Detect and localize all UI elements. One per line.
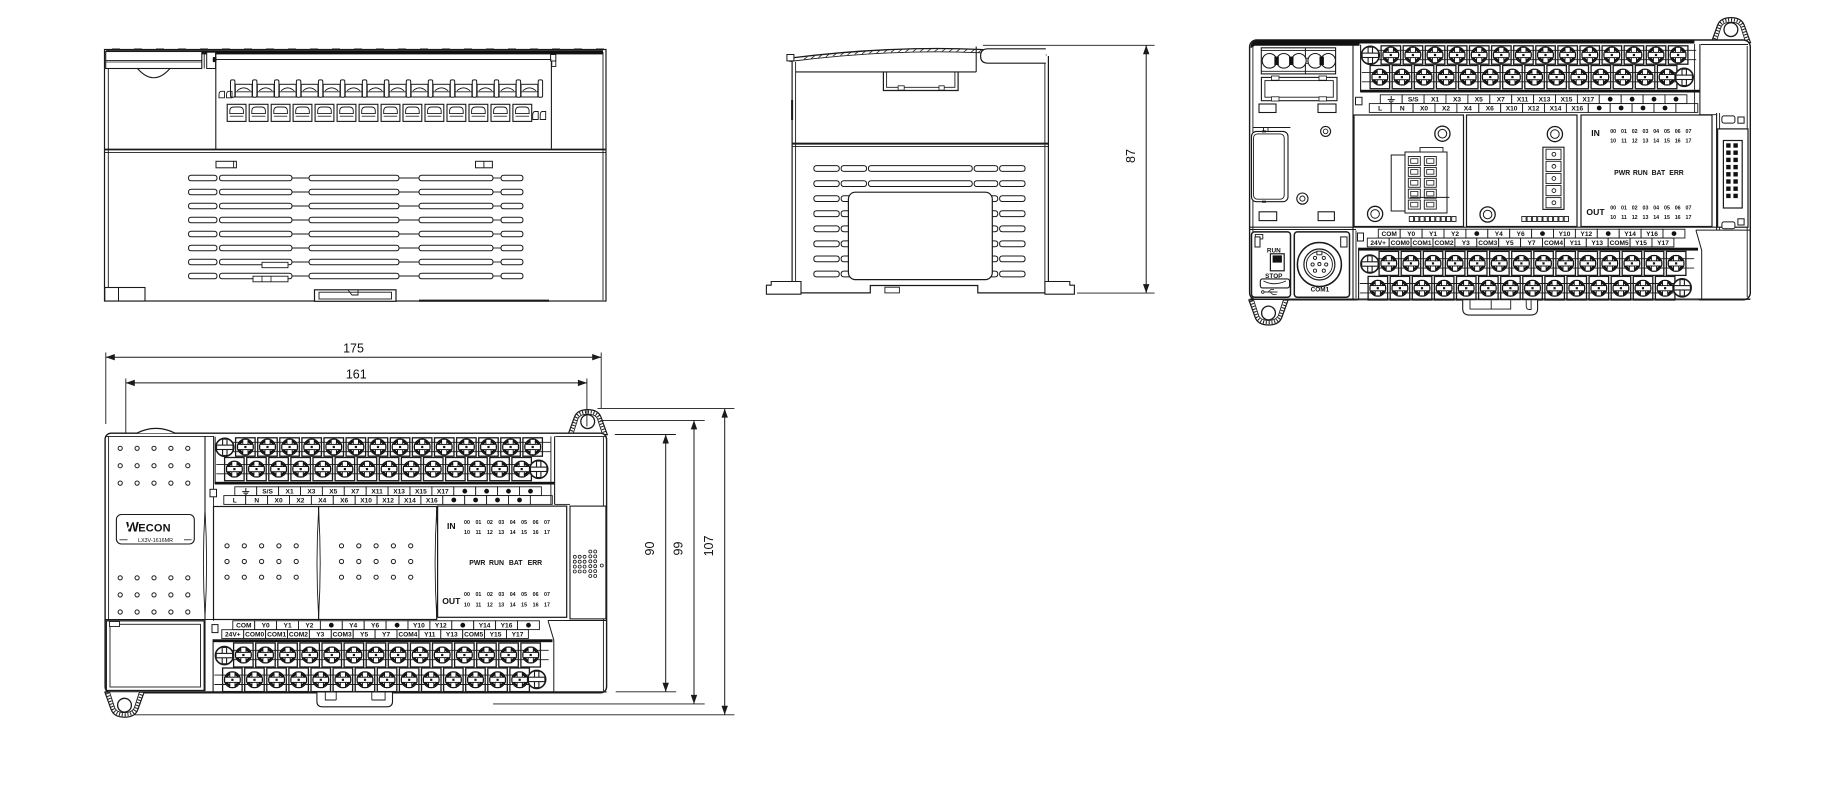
svg-text:X3: X3 — [307, 489, 315, 496]
svg-text:X14: X14 — [1550, 105, 1562, 112]
svg-text:X0: X0 — [1420, 105, 1428, 112]
svg-text:00: 00 — [464, 592, 470, 598]
svg-text:L: L — [1378, 105, 1382, 112]
svg-text:13: 13 — [498, 603, 504, 609]
svg-text:87: 87 — [1124, 149, 1138, 163]
svg-text:X11: X11 — [1517, 97, 1529, 104]
svg-text:17: 17 — [544, 603, 550, 609]
svg-text:OUT: OUT — [442, 596, 461, 606]
svg-text:X5: X5 — [1475, 97, 1483, 104]
svg-text:X17: X17 — [437, 489, 449, 496]
svg-text:13: 13 — [498, 530, 504, 536]
svg-text:Y16: Y16 — [501, 623, 513, 630]
svg-text:Y13: Y13 — [1591, 240, 1603, 247]
svg-text:COM: COM — [236, 623, 252, 630]
svg-text:10: 10 — [1610, 215, 1616, 221]
svg-text:X13: X13 — [1539, 97, 1551, 104]
svg-text:01: 01 — [1621, 129, 1627, 135]
svg-text:X11: X11 — [371, 489, 383, 496]
svg-text:107: 107 — [702, 536, 716, 557]
svg-text:X16: X16 — [426, 497, 438, 504]
svg-text:07: 07 — [1686, 129, 1692, 135]
svg-text:06: 06 — [533, 520, 539, 526]
svg-text:N: N — [1400, 105, 1405, 112]
svg-text:16: 16 — [533, 530, 539, 536]
svg-text:24V+: 24V+ — [1370, 240, 1386, 247]
svg-text:99: 99 — [672, 542, 686, 556]
svg-text:06: 06 — [533, 592, 539, 598]
svg-text:X6: X6 — [1486, 105, 1494, 112]
svg-text:14: 14 — [1653, 138, 1659, 144]
svg-text:15: 15 — [1664, 138, 1670, 144]
svg-text:03: 03 — [1643, 129, 1649, 135]
svg-text:COM: COM — [1382, 231, 1398, 238]
svg-text:07: 07 — [1686, 206, 1692, 212]
svg-text:COM1: COM1 — [267, 632, 286, 639]
svg-text:Y5: Y5 — [1506, 240, 1514, 247]
svg-text:Y7: Y7 — [1527, 240, 1535, 247]
svg-text:02: 02 — [1632, 206, 1638, 212]
svg-text:16: 16 — [533, 603, 539, 609]
svg-text:Y1: Y1 — [1429, 231, 1437, 238]
svg-text:PWR: PWR — [469, 560, 485, 567]
svg-text:IN: IN — [1591, 128, 1600, 138]
svg-text:Y2: Y2 — [1451, 231, 1459, 238]
svg-text:10: 10 — [464, 603, 470, 609]
svg-text:X3: X3 — [1453, 97, 1461, 104]
svg-text:11: 11 — [1621, 138, 1627, 144]
svg-text:X0: X0 — [275, 497, 283, 504]
svg-text:X7: X7 — [351, 489, 359, 496]
svg-text:IN: IN — [447, 521, 456, 531]
svg-text:17: 17 — [544, 530, 550, 536]
svg-text:Y0: Y0 — [262, 623, 270, 630]
svg-text:00: 00 — [464, 520, 470, 526]
svg-text:S/S: S/S — [262, 489, 273, 496]
svg-text:06: 06 — [1675, 129, 1681, 135]
svg-text:X15: X15 — [1561, 97, 1573, 104]
svg-text:05: 05 — [1664, 129, 1670, 135]
svg-text:ERR: ERR — [528, 560, 543, 567]
svg-text:04: 04 — [1653, 206, 1659, 212]
svg-text:03: 03 — [498, 520, 504, 526]
svg-text:Y4: Y4 — [349, 623, 357, 630]
svg-text:Y6: Y6 — [371, 623, 379, 630]
svg-text:01: 01 — [475, 520, 481, 526]
svg-text:11: 11 — [476, 530, 482, 536]
svg-text:COM2: COM2 — [289, 632, 308, 639]
svg-text:COM0: COM0 — [1391, 240, 1410, 247]
svg-text:OUT: OUT — [1586, 207, 1605, 217]
svg-text:12: 12 — [487, 530, 493, 536]
svg-text:14: 14 — [510, 530, 516, 536]
svg-text:16: 16 — [1675, 138, 1681, 144]
svg-text:15: 15 — [1664, 215, 1670, 221]
svg-text:COM2: COM2 — [1434, 240, 1453, 247]
svg-text:12: 12 — [1632, 215, 1638, 221]
svg-text:01: 01 — [475, 592, 481, 598]
svg-text:BAT: BAT — [509, 560, 523, 567]
svg-text:Y0: Y0 — [1407, 231, 1415, 238]
svg-text:RUN: RUN — [1633, 170, 1648, 177]
svg-text:14: 14 — [1653, 215, 1659, 221]
svg-text:X1: X1 — [1431, 97, 1439, 104]
svg-text:COM1: COM1 — [1412, 240, 1431, 247]
svg-text:LX3V-1616MR: LX3V-1616MR — [138, 538, 173, 544]
svg-text:03: 03 — [498, 592, 504, 598]
svg-text:L: L — [233, 497, 237, 504]
svg-text:Y17: Y17 — [1657, 240, 1669, 247]
svg-text:RUN: RUN — [489, 560, 504, 567]
svg-text:12: 12 — [487, 603, 493, 609]
svg-text:00: 00 — [1610, 129, 1616, 135]
svg-text:16: 16 — [1675, 215, 1681, 221]
svg-text:Y1: Y1 — [284, 623, 292, 630]
svg-text:N: N — [254, 497, 259, 504]
svg-text:X10: X10 — [360, 497, 372, 504]
svg-text:00: 00 — [1610, 206, 1616, 212]
svg-text:Y16: Y16 — [1646, 231, 1658, 238]
svg-text:Y10: Y10 — [1559, 231, 1571, 238]
svg-text:Y15: Y15 — [490, 632, 502, 639]
svg-text:17: 17 — [1686, 215, 1692, 221]
svg-text:Y2: Y2 — [305, 623, 313, 630]
svg-text:11: 11 — [1621, 215, 1627, 221]
svg-text:COM0: COM0 — [245, 632, 264, 639]
svg-text:X17: X17 — [1582, 97, 1594, 104]
svg-text:Y17: Y17 — [512, 632, 524, 639]
svg-text:Y3: Y3 — [1462, 240, 1470, 247]
svg-text:X15: X15 — [415, 489, 427, 496]
svg-text:COM5: COM5 — [1610, 240, 1629, 247]
svg-text:X1: X1 — [286, 489, 294, 496]
svg-text:Y6: Y6 — [1517, 231, 1525, 238]
svg-text:01: 01 — [1621, 206, 1627, 212]
svg-text:X10: X10 — [1506, 105, 1518, 112]
svg-text:X12: X12 — [382, 497, 394, 504]
svg-text:Y14: Y14 — [1624, 231, 1636, 238]
svg-text:13: 13 — [1643, 215, 1649, 221]
svg-text:03: 03 — [1643, 206, 1649, 212]
svg-text:X13: X13 — [393, 489, 405, 496]
svg-text:05: 05 — [521, 592, 527, 598]
svg-text:Y10: Y10 — [413, 623, 425, 630]
svg-text:14: 14 — [510, 603, 516, 609]
svg-text:X4: X4 — [1464, 105, 1472, 112]
svg-text:02: 02 — [487, 520, 493, 526]
svg-text:COM4: COM4 — [398, 632, 417, 639]
svg-text:X12: X12 — [1528, 105, 1540, 112]
svg-text:Y5: Y5 — [360, 632, 368, 639]
svg-text:Y11: Y11 — [1570, 240, 1582, 247]
svg-text:Y14: Y14 — [479, 623, 491, 630]
svg-text:Y12: Y12 — [435, 623, 447, 630]
svg-text:Y13: Y13 — [446, 632, 458, 639]
svg-text:Y11: Y11 — [424, 632, 436, 639]
svg-text:15: 15 — [521, 603, 527, 609]
svg-text:Y15: Y15 — [1635, 240, 1647, 247]
svg-text:X2: X2 — [296, 497, 304, 504]
svg-text:02: 02 — [487, 592, 493, 598]
svg-text:Y7: Y7 — [382, 632, 390, 639]
svg-text:X5: X5 — [329, 489, 337, 496]
svg-text:S/S: S/S — [1408, 97, 1419, 104]
svg-text:X16: X16 — [1571, 105, 1583, 112]
svg-text:COM3: COM3 — [1478, 240, 1497, 247]
svg-text:10: 10 — [464, 530, 470, 536]
svg-text:90: 90 — [643, 542, 657, 556]
svg-text:COM1: COM1 — [1311, 286, 1330, 293]
svg-text:07: 07 — [544, 592, 550, 598]
svg-text:Y3: Y3 — [316, 632, 324, 639]
svg-text:13: 13 — [1643, 138, 1649, 144]
svg-text:PWR: PWR — [1614, 170, 1630, 177]
svg-text:07: 07 — [544, 520, 550, 526]
svg-text:12: 12 — [1632, 138, 1638, 144]
svg-text:04: 04 — [510, 520, 516, 526]
svg-text:COM3: COM3 — [333, 632, 352, 639]
svg-text:BAT: BAT — [1652, 170, 1666, 177]
svg-text:Y12: Y12 — [1580, 231, 1592, 238]
svg-text:10: 10 — [1610, 138, 1616, 144]
svg-text:24V+: 24V+ — [225, 632, 241, 639]
svg-text:05: 05 — [521, 520, 527, 526]
svg-text:161: 161 — [346, 367, 367, 381]
svg-text:04: 04 — [1653, 129, 1659, 135]
svg-text:ERR: ERR — [1669, 170, 1684, 177]
svg-text:15: 15 — [521, 530, 527, 536]
svg-text:04: 04 — [510, 592, 516, 598]
svg-text:X14: X14 — [404, 497, 416, 504]
svg-text:11: 11 — [476, 603, 482, 609]
svg-text:X7: X7 — [1497, 97, 1505, 104]
svg-text:06: 06 — [1675, 206, 1681, 212]
svg-text:X6: X6 — [340, 497, 348, 504]
svg-text:X2: X2 — [1442, 105, 1450, 112]
svg-text:17: 17 — [1686, 138, 1692, 144]
svg-text:Y4: Y4 — [1495, 231, 1503, 238]
svg-text:ECON: ECON — [138, 522, 171, 534]
svg-text:02: 02 — [1632, 129, 1638, 135]
svg-text:175: 175 — [343, 342, 364, 356]
svg-text:COM5: COM5 — [464, 632, 483, 639]
svg-text:05: 05 — [1664, 206, 1670, 212]
svg-text:COM4: COM4 — [1544, 240, 1563, 247]
svg-text:X4: X4 — [318, 497, 326, 504]
